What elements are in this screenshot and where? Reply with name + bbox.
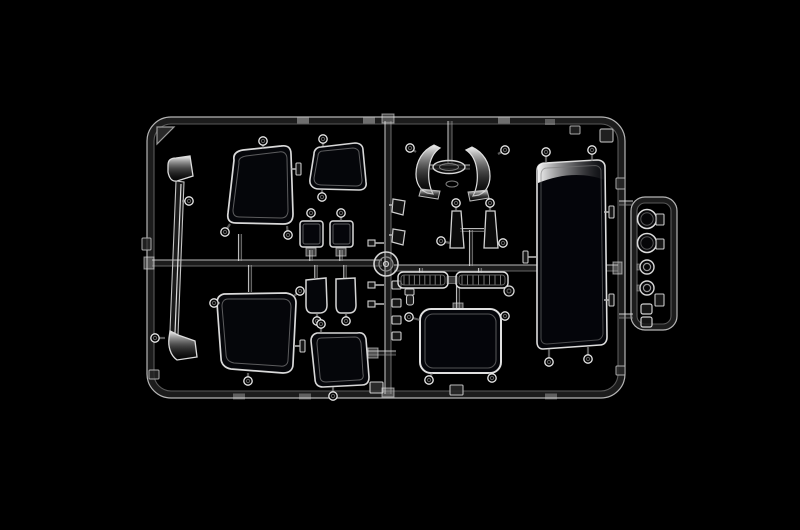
extension-side-tab bbox=[656, 239, 664, 249]
gate-tee bbox=[523, 251, 528, 263]
junction-collar bbox=[382, 388, 394, 397]
photo-stage: Photograph of a transparent injection-mo… bbox=[0, 0, 800, 530]
small-window-rounded bbox=[336, 278, 356, 313]
gate-tee bbox=[296, 163, 301, 175]
frame-gate-mark bbox=[299, 394, 311, 400]
frame-tab bbox=[450, 385, 463, 395]
window-door-upper-left bbox=[228, 146, 293, 224]
frame-tab bbox=[149, 370, 159, 379]
sprue-photo bbox=[0, 0, 800, 530]
gate-tee bbox=[609, 206, 614, 218]
frame-tab bbox=[370, 382, 383, 393]
rear-window bbox=[420, 309, 501, 373]
trapezoid-part bbox=[450, 211, 464, 248]
bar-connector bbox=[447, 277, 457, 284]
runner-horizontal-left bbox=[152, 260, 382, 266]
gate-nub bbox=[501, 312, 509, 320]
junction-collar bbox=[336, 248, 346, 256]
frame-tab bbox=[570, 126, 580, 134]
bottle-clip bbox=[405, 289, 414, 295]
junction-collar bbox=[306, 248, 316, 256]
frame-gate-mark bbox=[233, 394, 245, 400]
mirror-runner-stub bbox=[448, 121, 452, 163]
gate-nub bbox=[498, 239, 507, 247]
extension-link-bottom bbox=[619, 314, 633, 318]
frame-gate-mark bbox=[498, 118, 510, 124]
extension-side-tab bbox=[656, 214, 664, 225]
runner-clip-tee bbox=[368, 240, 375, 246]
runner-clip-tee bbox=[368, 282, 375, 288]
roundwin2-stem bbox=[344, 265, 347, 278]
frame-gate-mark bbox=[545, 394, 557, 400]
bottle-clip-body bbox=[407, 295, 414, 305]
windscreen-panel bbox=[537, 160, 607, 349]
dome-lens bbox=[433, 161, 465, 174]
extension-link-top bbox=[619, 201, 633, 205]
bar-end-nub bbox=[504, 286, 514, 296]
frame-gate-mark bbox=[363, 118, 375, 124]
window5-stem bbox=[249, 265, 252, 292]
header-strip-top-hook bbox=[168, 156, 193, 181]
small-square-lens bbox=[641, 304, 652, 314]
ring-lens bbox=[640, 260, 654, 274]
roundwin1-stem bbox=[315, 265, 318, 278]
frame-tab bbox=[616, 178, 625, 189]
window1-stem bbox=[239, 234, 242, 261]
junction-collar bbox=[144, 257, 154, 269]
runner-hub-center bbox=[383, 261, 388, 266]
runner-clip-square bbox=[392, 316, 401, 324]
ring-lens bbox=[640, 281, 654, 295]
junction-collar bbox=[368, 348, 378, 358]
trapezoid-part bbox=[484, 211, 498, 248]
wedge-part bbox=[392, 229, 405, 245]
gate-tee bbox=[609, 294, 614, 306]
runner-clip-tee bbox=[368, 301, 375, 307]
frame-gate-mark bbox=[545, 119, 555, 125]
junction-collar bbox=[382, 114, 394, 123]
small-window-rounded bbox=[306, 278, 327, 313]
gate-tee bbox=[300, 340, 305, 352]
frame-tab bbox=[616, 366, 625, 375]
trapezoid-stem bbox=[470, 230, 473, 266]
runner-clip-square bbox=[392, 299, 401, 307]
extension-side-tab bbox=[655, 294, 664, 306]
frame-tab bbox=[142, 238, 151, 250]
gate-nub bbox=[488, 373, 496, 382]
junction-collar bbox=[613, 262, 622, 274]
corner-tab-top-right bbox=[600, 129, 613, 142]
small-square-lens bbox=[641, 317, 652, 327]
frame-gate-mark bbox=[297, 118, 309, 124]
wedge-part bbox=[392, 199, 405, 215]
runner-clip-square bbox=[392, 332, 401, 340]
